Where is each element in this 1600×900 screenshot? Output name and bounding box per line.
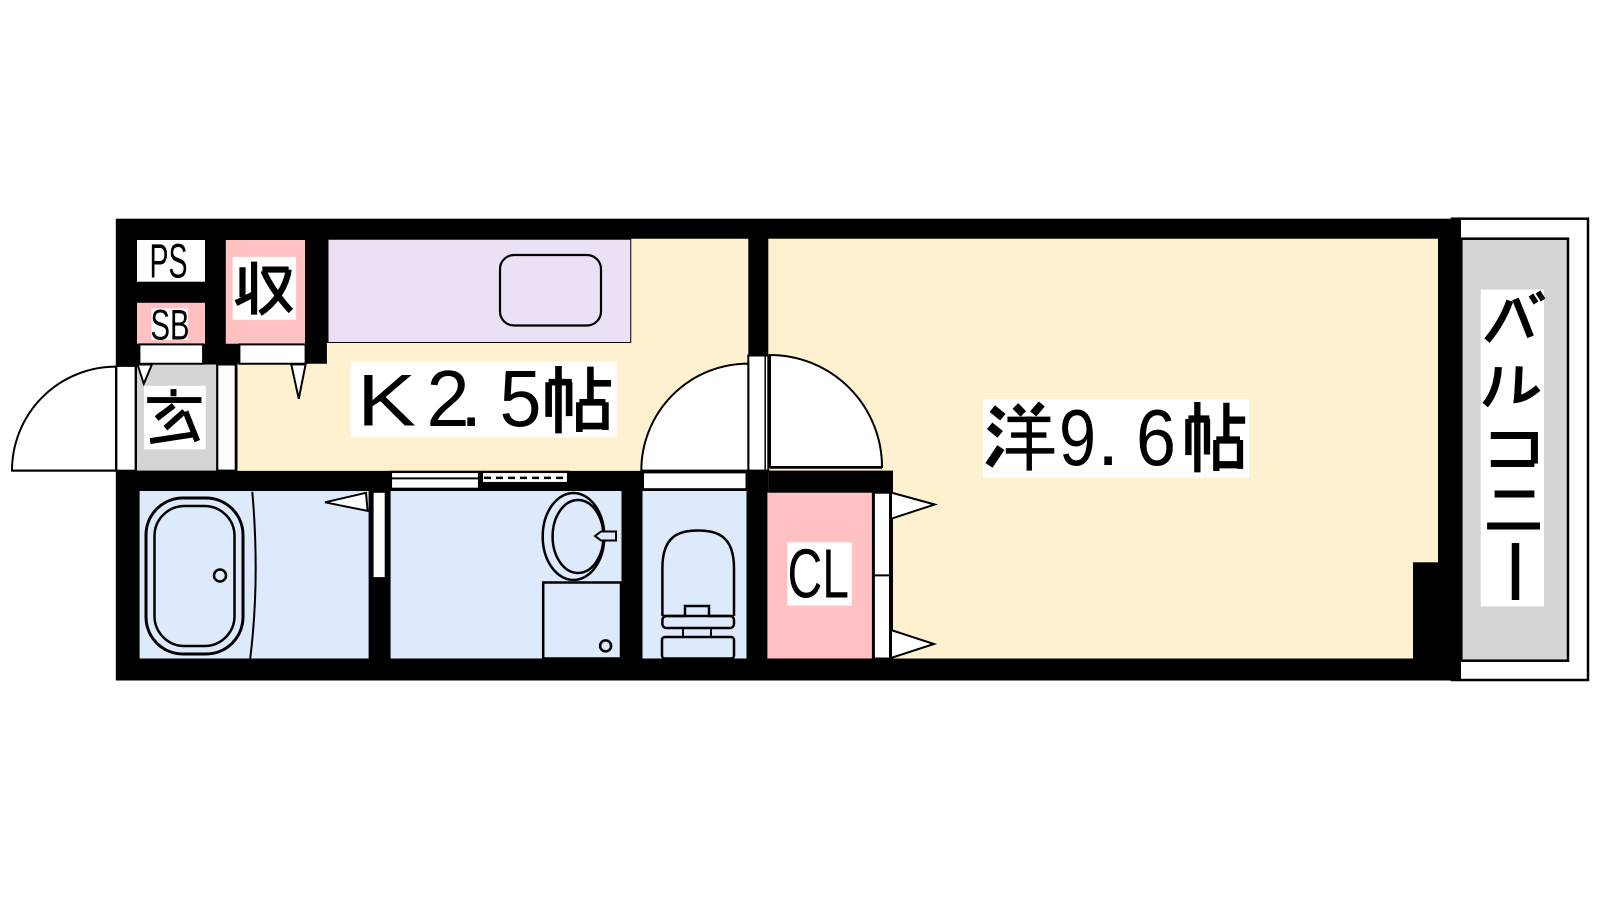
svg-text:SB: SB <box>151 302 190 350</box>
svg-text:CL: CL <box>788 535 850 613</box>
svg-text:K: K <box>357 361 416 442</box>
svg-text:.: . <box>460 354 482 443</box>
svg-text:5: 5 <box>500 354 542 443</box>
svg-text:PS: PS <box>150 235 188 289</box>
svg-text:6: 6 <box>1136 393 1176 482</box>
svg-text:.: . <box>1097 393 1119 482</box>
svg-text:9: 9 <box>1059 393 1096 482</box>
